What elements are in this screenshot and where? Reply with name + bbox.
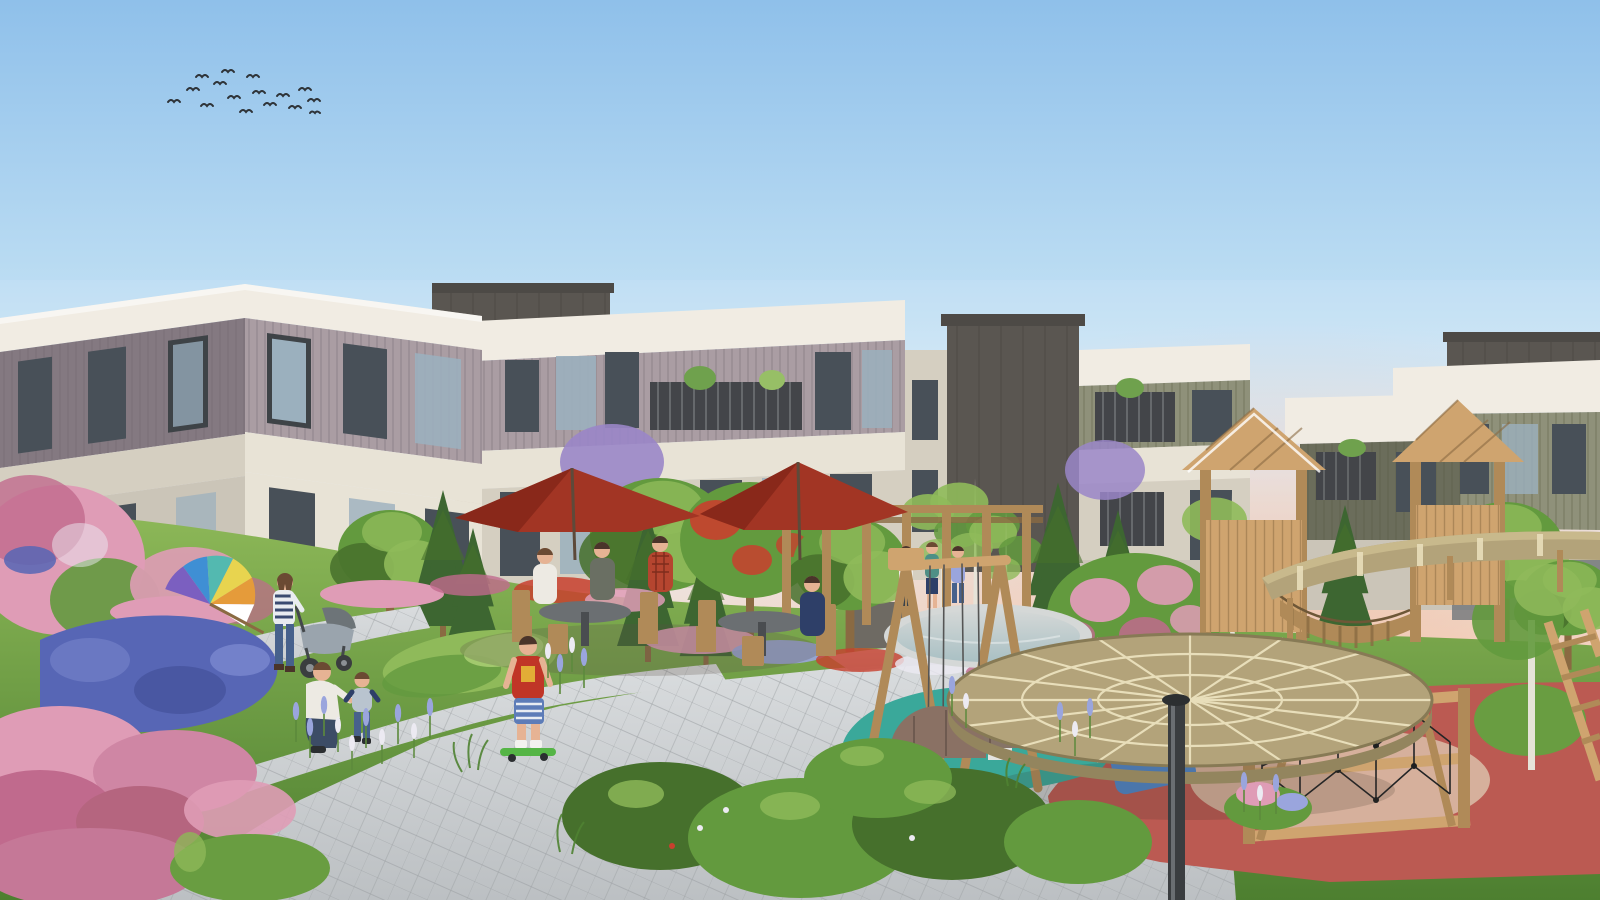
rendering-canvas bbox=[0, 0, 1600, 900]
heather-band bbox=[320, 580, 444, 608]
skateboard bbox=[500, 748, 556, 756]
lilac-tree bbox=[1065, 440, 1145, 500]
swing-top-plate bbox=[888, 548, 924, 570]
canopy-pole bbox=[1168, 700, 1185, 900]
rendering-stage bbox=[0, 0, 1600, 900]
tee-graphic bbox=[521, 666, 535, 682]
